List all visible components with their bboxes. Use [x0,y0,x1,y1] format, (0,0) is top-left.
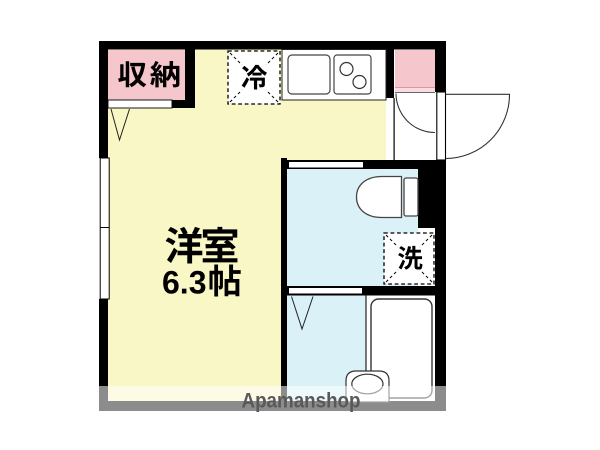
svg-text:6.3: 6.3 [162,265,206,301]
svg-text:Apamanshop: Apamanshop [242,390,361,413]
